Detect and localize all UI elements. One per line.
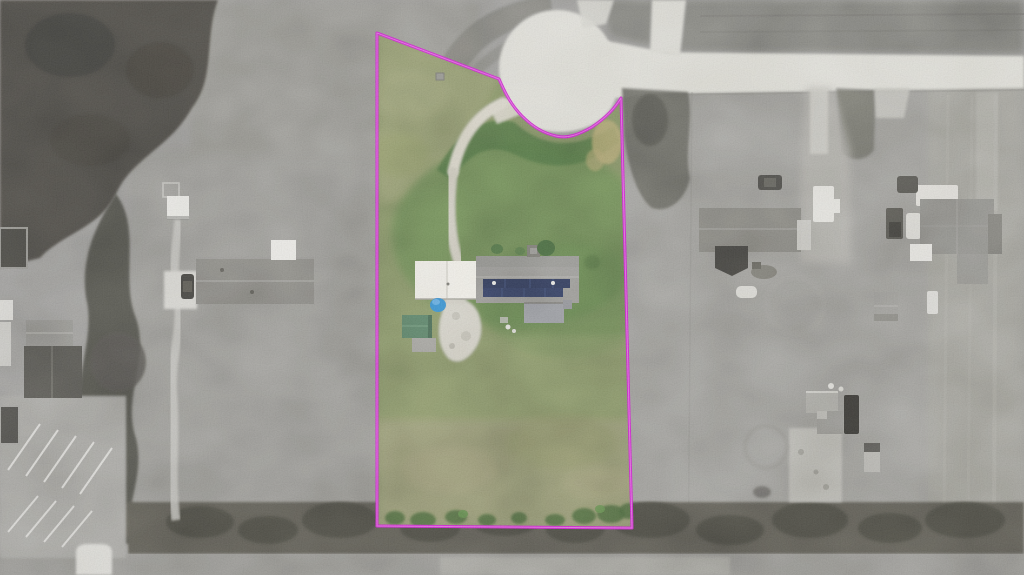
aerial-photo <box>0 0 1024 575</box>
photo-grain-texture <box>0 0 1024 575</box>
aerial-photo-stage <box>0 0 1024 575</box>
